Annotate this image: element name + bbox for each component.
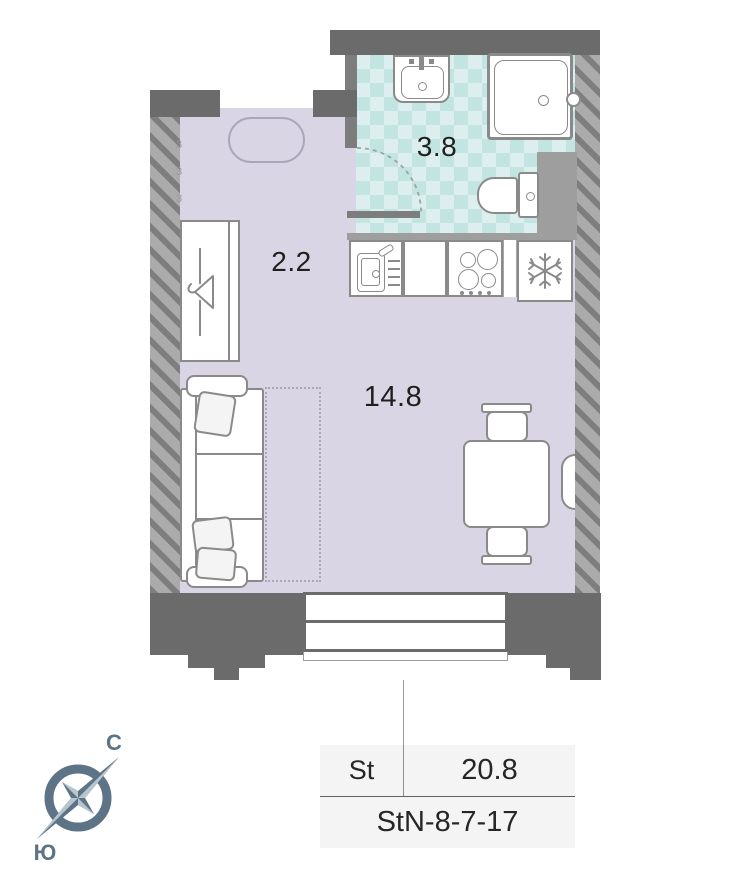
sofa-seat-divider [195,453,262,455]
bed-zone-outline [265,387,321,582]
stove-burners-icon [447,240,503,297]
bath-sink-drain [418,82,427,91]
wall-bottom-left-step1 [188,655,265,668]
toilet-icon [477,177,518,214]
floor-plan: 3 3 3 [0,0,751,880]
snowflake-icon [525,251,565,291]
chair-seat [486,411,528,442]
wardrobe-divider [228,222,230,360]
wall-kitchen [347,233,537,240]
dining-table-icon [463,440,550,528]
bath-sink-tap-handle [429,59,434,64]
compass-south-label: Ю [34,840,57,865]
kitchen-rack-line [388,284,400,286]
pointer-line [403,680,404,745]
kitchen-rack-line [388,260,400,262]
burner [460,252,476,268]
wall-entry-pillar [313,90,357,117]
shower-basin [494,60,568,135]
stove-knob [460,291,464,295]
window-divider [306,620,505,623]
stove-knob [469,291,473,295]
toilet-button [526,192,535,201]
wall-bottom-right-step2 [570,668,601,680]
unit-code-label: StN-8-7-17 [377,806,519,839]
stove-knob [487,291,491,295]
wall-bottom-left [150,593,303,655]
total-area-value: 20.8 [403,745,575,796]
sofa-pillow [195,546,238,581]
wall-bottom-right-step1 [546,655,601,668]
duct-shaft [537,152,577,240]
kitchen-counter [403,240,447,297]
wardrobe-hanger-icon [186,272,222,312]
wall-mark-icon: 3 [176,140,182,150]
living-room-area-label: 14.8 [354,381,432,414]
bath-sink-tap [419,57,424,70]
kitchen-rack-line [388,276,400,278]
hallway-area-label: 2.2 [264,246,319,278]
shower-tray-icon [487,53,573,140]
burner [477,249,498,270]
kitchen-faucet [377,243,394,257]
wall-mark-icon: 3 [176,194,182,204]
bath-sink-tap-handle [409,59,414,64]
compass-north-label: С [106,730,122,755]
kitchen-rack-line [388,268,400,270]
burner [481,273,496,288]
sofa-pillow [193,390,237,437]
wall-bottom-left-step2 [214,668,239,680]
bath-sink-icon [393,55,450,103]
wall-entry-left [150,90,220,117]
wall-right [575,55,600,593]
kitchen-sink-icon [357,253,385,292]
fridge-snowflake-icon [517,240,573,302]
chair-backrest [481,555,532,565]
wall-sconce [561,454,575,510]
wall-top [330,30,600,55]
window-sill [303,652,508,661]
info-table-row-bottom: StN-8-7-17 [320,797,575,848]
info-table-row-top: St 20.8 [320,745,575,796]
shower-faucet [566,92,581,107]
toilet-tank [518,172,539,218]
chair-seat [486,526,528,557]
burner [458,269,479,290]
bathroom-area-label: 3.8 [407,131,467,163]
stove-knob [478,291,482,295]
window [303,592,508,652]
entrance-oval [228,117,305,163]
wardrobe [180,220,240,362]
wall-mark-icon: 3 [176,167,182,177]
unit-type-label: St [320,755,403,786]
kitchen-sink-drain [372,270,380,278]
shower-drain [538,95,549,106]
compass-rose-icon: С Ю [18,718,138,868]
wall-bottom-right [508,593,601,655]
kitchen-sink-unit [349,240,403,297]
wall-left [150,117,180,593]
counter-gap [503,240,517,297]
